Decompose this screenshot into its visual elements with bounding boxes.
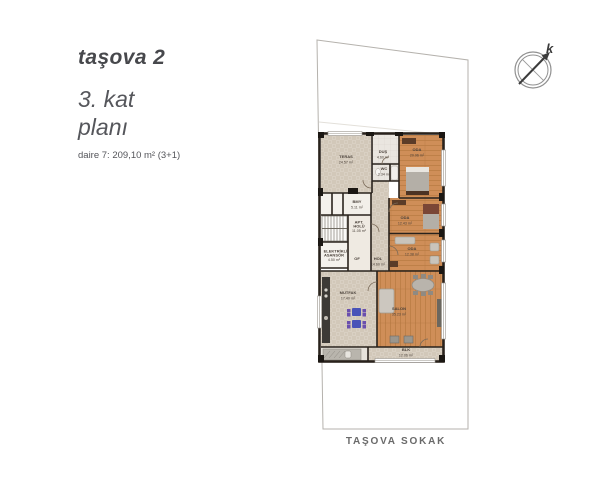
room-label-asansor: ELEKTRİKLİ ASANSÖR4.50 m² bbox=[324, 250, 345, 262]
armchair-1 bbox=[430, 243, 439, 251]
pouf-1 bbox=[390, 336, 399, 343]
floor-plan-page: taşova 2 3. kat planı daire 7: 209,10 m²… bbox=[0, 0, 600, 490]
room-label-oda-1: ODA20.96 m² bbox=[410, 149, 424, 158]
room-label-teras: TERAS24.57 m² bbox=[339, 156, 353, 165]
kitchen-counter bbox=[322, 277, 330, 343]
room-label-oda-3: ODA12.38 m² bbox=[405, 248, 419, 257]
site-plan-svg bbox=[0, 0, 600, 490]
wardrobe bbox=[402, 138, 416, 144]
bed-oda-2-body bbox=[423, 214, 439, 229]
room-label-salon: SALON35.23 m² bbox=[392, 308, 406, 317]
bathtub bbox=[391, 166, 398, 180]
sink-counter bbox=[323, 349, 361, 360]
street-label: TAŞOVA SOKAK bbox=[296, 436, 496, 447]
room-label-bmy: BMY5.11 m² bbox=[351, 201, 363, 210]
room-label-wc: WC2.34 m² bbox=[378, 168, 390, 177]
compass-north-label: k bbox=[546, 41, 553, 56]
room-label-balkon: BLK12.06 m² bbox=[399, 349, 413, 358]
sink bbox=[345, 351, 351, 358]
bed-oda-2-top bbox=[423, 204, 439, 214]
room-label-mutfak: MUTFAK17.40 m² bbox=[340, 292, 357, 301]
bed-pillows bbox=[406, 167, 429, 172]
compass bbox=[515, 52, 551, 88]
room-label-apt-holu: APT. HOLÜ11.05 m² bbox=[349, 221, 370, 233]
room-label-hol: HOL14.60 m² bbox=[371, 258, 385, 267]
staircase bbox=[322, 216, 347, 241]
cabinet-oda-3 bbox=[390, 261, 398, 267]
pouf-2 bbox=[404, 336, 413, 343]
room-label-dus: DUŞ4.60 m² bbox=[377, 151, 389, 160]
bed-footboard bbox=[406, 191, 429, 195]
armchair-2 bbox=[430, 256, 439, 264]
room-label-of: OF bbox=[354, 258, 360, 262]
sofa-oda-3 bbox=[395, 237, 415, 244]
room-label-oda-2: ODA12.43 m² bbox=[398, 217, 412, 226]
dining-table bbox=[412, 279, 434, 292]
